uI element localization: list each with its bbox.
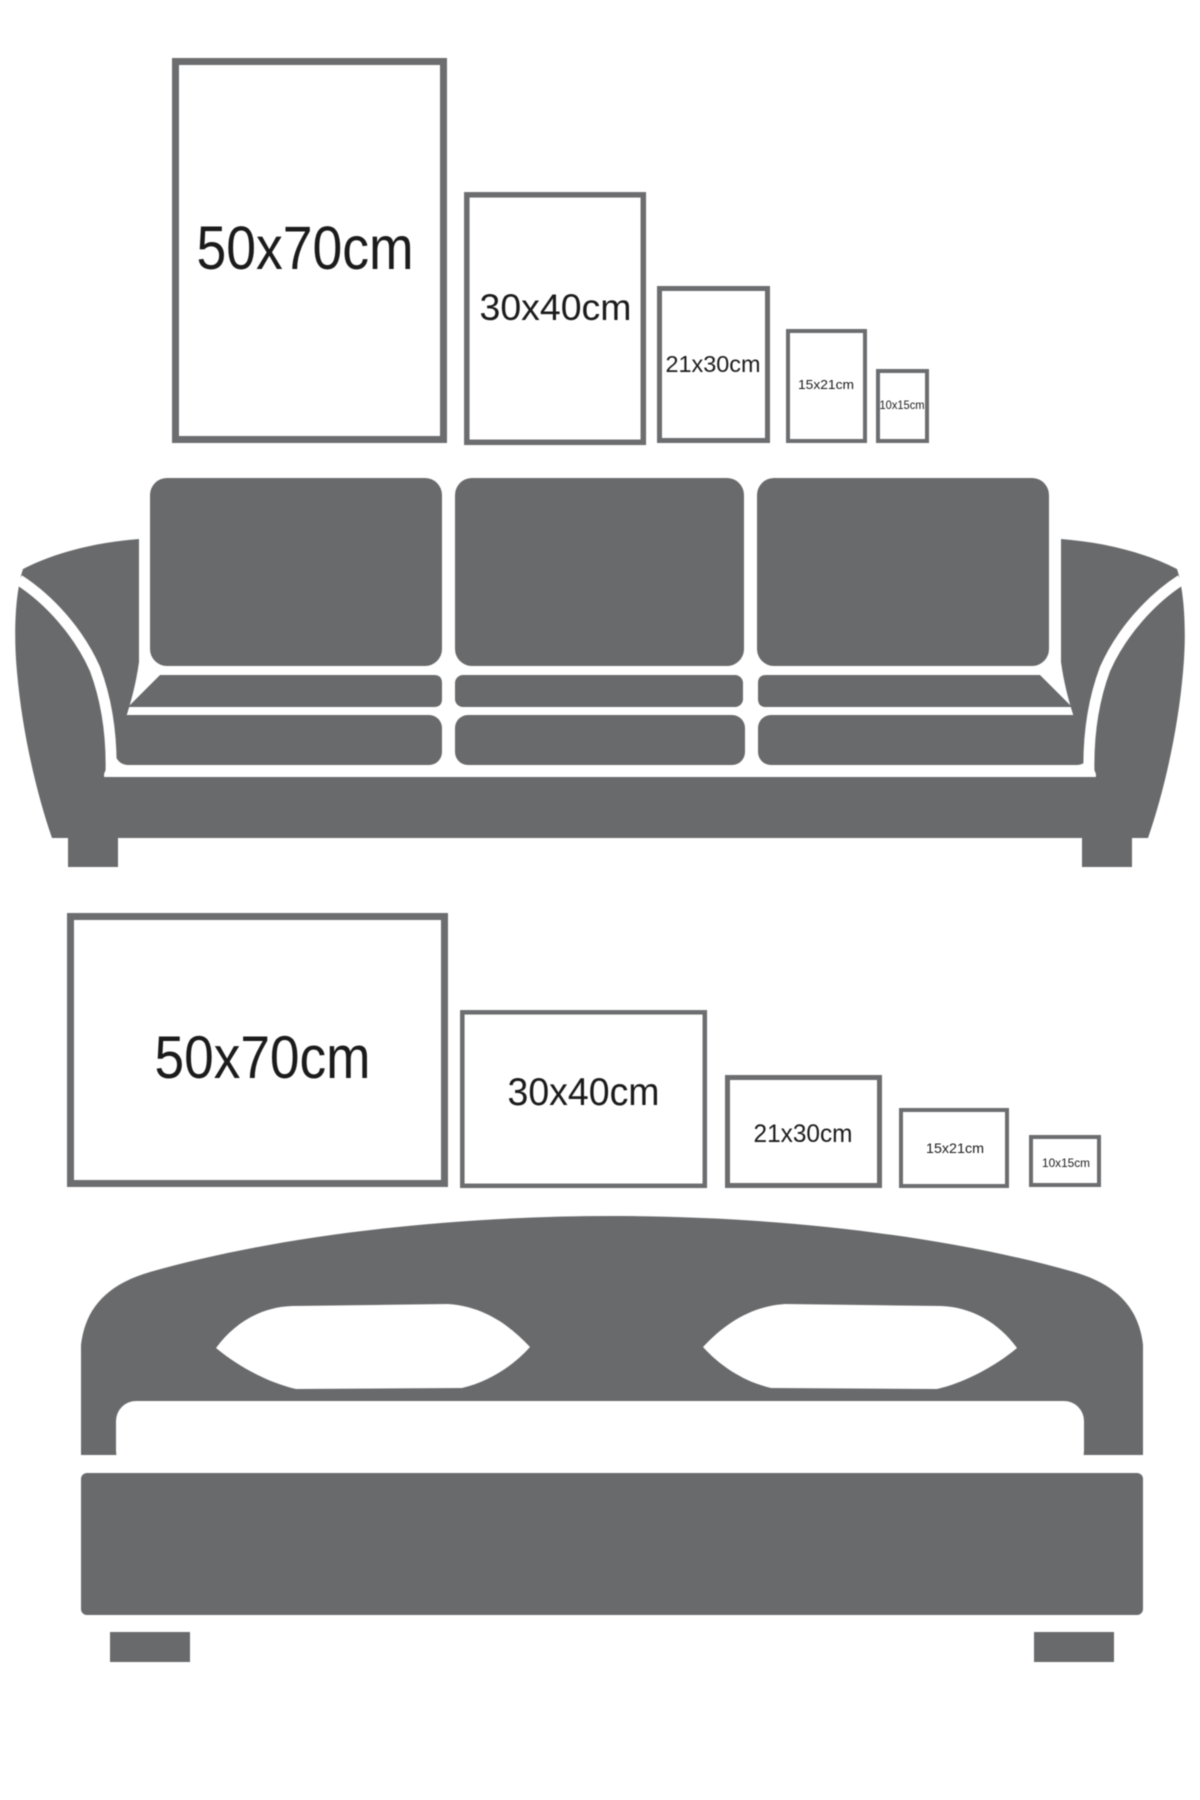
- svg-text:15x21cm: 15x21cm: [926, 1141, 984, 1156]
- svg-text:10x15cm: 10x15cm: [880, 398, 925, 412]
- svg-text:21x30cm: 21x30cm: [666, 351, 761, 377]
- svg-text:10x15cm: 10x15cm: [1042, 1156, 1090, 1170]
- svg-text:50x70cm: 50x70cm: [197, 214, 414, 282]
- svg-text:30x40cm: 30x40cm: [480, 287, 632, 328]
- svg-text:50x70cm: 50x70cm: [155, 1024, 371, 1091]
- svg-text:21x30cm: 21x30cm: [754, 1120, 853, 1148]
- svg-text:30x40cm: 30x40cm: [508, 1071, 660, 1114]
- svg-text:15x21cm: 15x21cm: [798, 377, 854, 392]
